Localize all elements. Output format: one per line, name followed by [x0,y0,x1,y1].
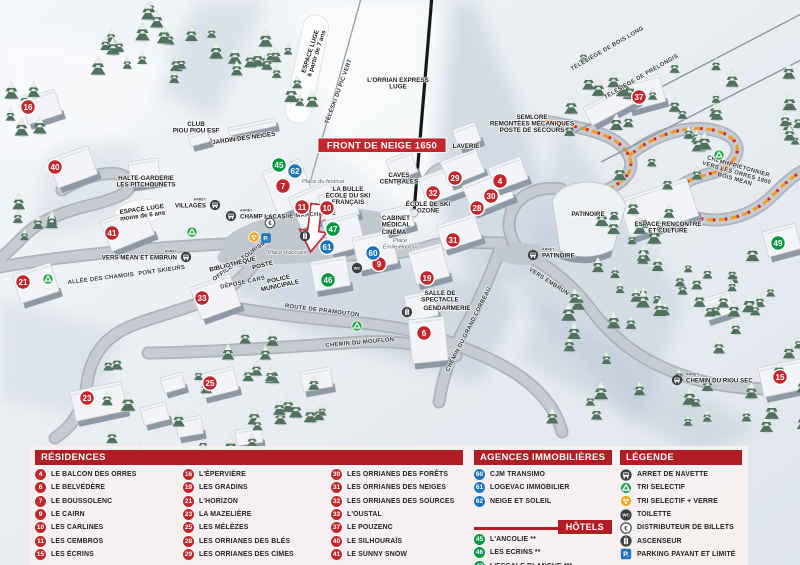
legend-item: 29LES ORRIANES DES CIMES [183,548,331,561]
marker-number: 61 [474,482,485,493]
marker-number: 10 [35,522,46,533]
map-marker-60[interactable]: 60 [366,246,381,261]
tri-icon [620,482,632,494]
map-marker-4[interactable]: 4 [493,174,508,189]
map-marker-61[interactable]: 61 [320,240,335,255]
svg-text:P.: P. [263,235,269,242]
svg-text:10: 10 [323,204,332,213]
legend-item: 60CJM TRANSIMO [474,468,612,481]
map-marker-15[interactable]: 15 [773,370,788,385]
svg-text:46: 46 [324,276,333,285]
map-label: HALTE-GARDERIELES PITCHOUNETS [116,175,175,189]
map-marker-62[interactable]: 62 [288,164,303,179]
legend-item: 4LE BALCON DES ORRES [35,468,183,481]
svg-text:4: 4 [498,177,503,186]
wc-icon: WC [620,509,632,521]
map-label: GENDARMERIE [423,305,470,312]
svg-text:30: 30 [487,192,496,201]
map-marker-30[interactable]: 30 [484,189,499,204]
marker-number: 29 [183,549,194,560]
marker-number: 47 [474,561,485,565]
marker-number: 37 [331,522,342,533]
svg-text:33: 33 [198,294,207,303]
legend-item: 19LES GRADINS [183,481,331,494]
svg-text:VERS MÉAN ET EMBRUN: VERS MÉAN ET EMBRUN [102,254,178,262]
svg-text:€: € [624,525,628,532]
marker-number: 23 [183,509,194,520]
euro-icon: € [620,522,632,534]
svg-text:VILLAGES: VILLAGES [175,203,206,210]
svg-text:49: 49 [774,239,783,248]
resort-map-page: CLUBPIOU PIOU ESFJARDIN DES NEIGESHALTE-… [0,0,800,565]
svg-text:47: 47 [329,225,338,234]
svg-text:41: 41 [108,229,117,238]
legend-item: 46LES ECRINS ** [474,546,572,559]
legend-item: 23LA MAZELIÈRE [183,508,331,521]
map-marker-33[interactable]: 33 [195,291,210,306]
marker-number: 41 [331,549,342,560]
marker-number: 16 [183,469,194,480]
map-marker-23[interactable]: 23 [80,391,95,406]
map-marker-49[interactable]: 49 [771,236,786,251]
svg-text:61: 61 [323,243,332,252]
svg-text:PATINOIRE: PATINOIRE [542,253,575,260]
legend-item: 10LES CARLINES [35,521,183,534]
svg-text:16: 16 [24,103,33,112]
legend-residences: RÉSIDENCES 4LE BALCON DES ORRES6LE BELVÉ… [35,450,463,561]
svg-text:15: 15 [776,373,785,382]
tri-verre-icon [249,232,259,242]
svg-text:WC: WC [354,266,361,271]
svg-text:62: 62 [291,167,300,176]
legend-item: TRI SELECTIF [620,481,742,494]
svg-text:19: 19 [423,274,432,283]
svg-text:31: 31 [449,236,458,245]
wc-icon: WC [352,263,362,273]
svg-text:25: 25 [206,379,215,388]
svg-text:ARRÊT: ARRÊT [686,372,699,377]
svg-text:ARRÊT: ARRÊT [165,249,178,254]
svg-text:7: 7 [281,182,286,191]
legend-item: ASCENSEUR [620,534,742,547]
map-marker-21[interactable]: 21 [16,275,31,290]
svg-text:37: 37 [635,93,644,102]
front-de-neige-label: FRONT DE NEIGE 1650 [327,141,437,152]
marker-number: 45 [474,534,485,545]
legend-item: €DISTRIBUTEUR DE BILLETS [620,521,742,534]
tri-icon [187,227,197,237]
map-marker-29[interactable]: 29 [448,171,463,186]
legend-item: 7LE BOUSSOLENC [35,495,183,508]
svg-text:60: 60 [369,249,378,258]
svg-text:ARRÊT: ARRÊT [240,208,253,213]
map-marker-46[interactable]: 46 [321,273,336,288]
svg-text:CHAMP LACAS: CHAMP LACAS [240,214,286,221]
svg-text:6: 6 [422,329,427,338]
marker-number: 11 [35,536,46,547]
marker-number: 6 [35,482,46,493]
legend-item: 33L'OUSTAL [331,508,463,521]
tri-icon [352,321,362,331]
map-label: Place d'accueil [268,250,307,256]
map-label: PATINOIRE [571,211,604,218]
ascenseur-icon [402,307,412,317]
map-label: Place du festival [302,179,345,185]
map-label: CINÉMA [382,227,407,236]
map-marker-7[interactable]: 7 [276,179,291,194]
marker-number: 7 [35,496,46,507]
parking-icon: P. [620,548,632,560]
marker-number: 4 [35,469,46,480]
legend-item: 30LES ORRIANES DES FORÊTS [331,468,463,481]
marker-number: 25 [183,522,194,533]
legend-item: 16L'ÉPERVIÈRE [183,468,331,481]
map-marker-40[interactable]: 40 [48,160,63,175]
legend-item: 37LE POUZENC [331,521,463,534]
svg-text:32: 32 [429,189,438,198]
map-label: CABINETMÉDICAL [382,215,411,229]
legend-item: 41LE SUNNY SNOW [331,548,463,561]
legend-item: TRI SELECTIF + VERRE [620,495,742,508]
svg-text:45: 45 [275,161,284,170]
divider [474,527,569,530]
map-label: SALLE DESPECTACLE [421,290,459,304]
legend-item: 32LES ORRIANES DES SOURCES [331,495,463,508]
ascenseur-icon [620,535,632,547]
legend-item: 28LES ORRIANES DES BLÉS [183,534,331,547]
legend-item: 40LE SILHOURAÏS [331,534,463,547]
marker-number: 46 [474,547,485,558]
svg-text:29: 29 [451,174,460,183]
legend-item: 47L'ESCALE BLANCHE *** [474,560,572,565]
svg-text:ARRÊT: ARRÊT [194,197,207,202]
marker-number: 33 [331,509,342,520]
legend-item: ARRET DE NAVETTE [620,468,742,481]
legend-item: WCTOILETTE [620,508,742,521]
map-marker-47[interactable]: 47 [326,222,341,237]
euro-icon: € [265,218,275,228]
legend-legende: LÉGENDE ARRET DE NAVETTETRI SELECTIFTRI … [620,450,742,561]
legend-item: 45L'ANCOLIE ** [474,533,572,546]
legend-item: 11LES CEMBROS [35,534,183,547]
map-marker-11[interactable]: 11 [295,200,310,215]
tri-icon [714,150,724,160]
marker-number: 15 [35,549,46,560]
legend-item: 6LE BELVÉDÈRE [35,481,183,494]
map-label: LAVERIE [453,143,480,150]
marker-number: 21 [183,496,194,507]
svg-text:23: 23 [83,394,92,403]
svg-text:CHEMIN DU RIOU SEC: CHEMIN DU RIOU SEC [686,378,753,385]
hotels-header: HÔTELS [558,520,612,534]
map-marker-32[interactable]: 32 [426,186,441,201]
map-marker-31[interactable]: 31 [446,233,461,248]
marker-number: 31 [331,482,342,493]
marker-number: 28 [183,536,194,547]
map-marker-37[interactable]: 37 [632,90,647,105]
legende-header: LÉGENDE [620,450,742,465]
svg-text:9: 9 [377,260,382,269]
legend-item: 21L'HORIZON [183,495,331,508]
legend-item: 9LE CAIRN [35,508,183,521]
map-marker-6[interactable]: 6 [417,326,432,341]
svg-text:40: 40 [51,163,60,172]
svg-text:ARRÊT: ARRÊT [542,247,555,252]
legend-agences: AGENCES IMMOBILIÈRES 60CJM TRANSIMO61LOG… [474,450,612,562]
legend-item: 31LES ORRIANES DES NEIGES [331,481,463,494]
marker-number: 9 [35,509,46,520]
marker-number: 62 [474,496,485,507]
parking-icon: P. [261,233,271,243]
map-marker-16[interactable]: 16 [21,100,36,115]
tri-icon [43,274,53,284]
marker-number: 32 [331,496,342,507]
legend-item: 25LES MÉLÈZES [183,521,331,534]
legend-item: P.PARKING PAYANT ET LIMITÉ [620,548,742,561]
svg-text:11: 11 [298,203,307,212]
map-marker-28[interactable]: 28 [470,201,485,216]
bus-icon [620,469,632,481]
map-marker-19[interactable]: 19 [420,271,435,286]
front-de-neige-banner: FRONT DE NEIGE 1650 [318,138,446,153]
marker-number: 19 [183,482,194,493]
marker-number: 60 [474,469,485,480]
legend-item: 62NEIGE ET SOLEIL [474,495,612,508]
legend-item: 61LOGEVAC IMMOBILIER [474,481,612,494]
map-marker-41[interactable]: 41 [105,226,120,241]
marker-number: 30 [331,469,342,480]
svg-text:P.: P. [623,550,629,559]
svg-text:WC: WC [622,512,630,517]
agences-header: AGENCES IMMOBILIÈRES [474,450,612,465]
map-marker-25[interactable]: 25 [203,376,218,391]
map-marker-10[interactable]: 10 [320,201,335,216]
svg-text:21: 21 [19,278,28,287]
residences-header: RÉSIDENCES [35,450,463,465]
svg-text:28: 28 [473,204,482,213]
tri-verre-icon [620,495,632,507]
marker-number: 40 [331,536,342,547]
ascenseur-icon [300,231,310,241]
legend-item: 15LES ÉCRINS [35,548,183,561]
map-marker-45[interactable]: 45 [272,158,287,173]
